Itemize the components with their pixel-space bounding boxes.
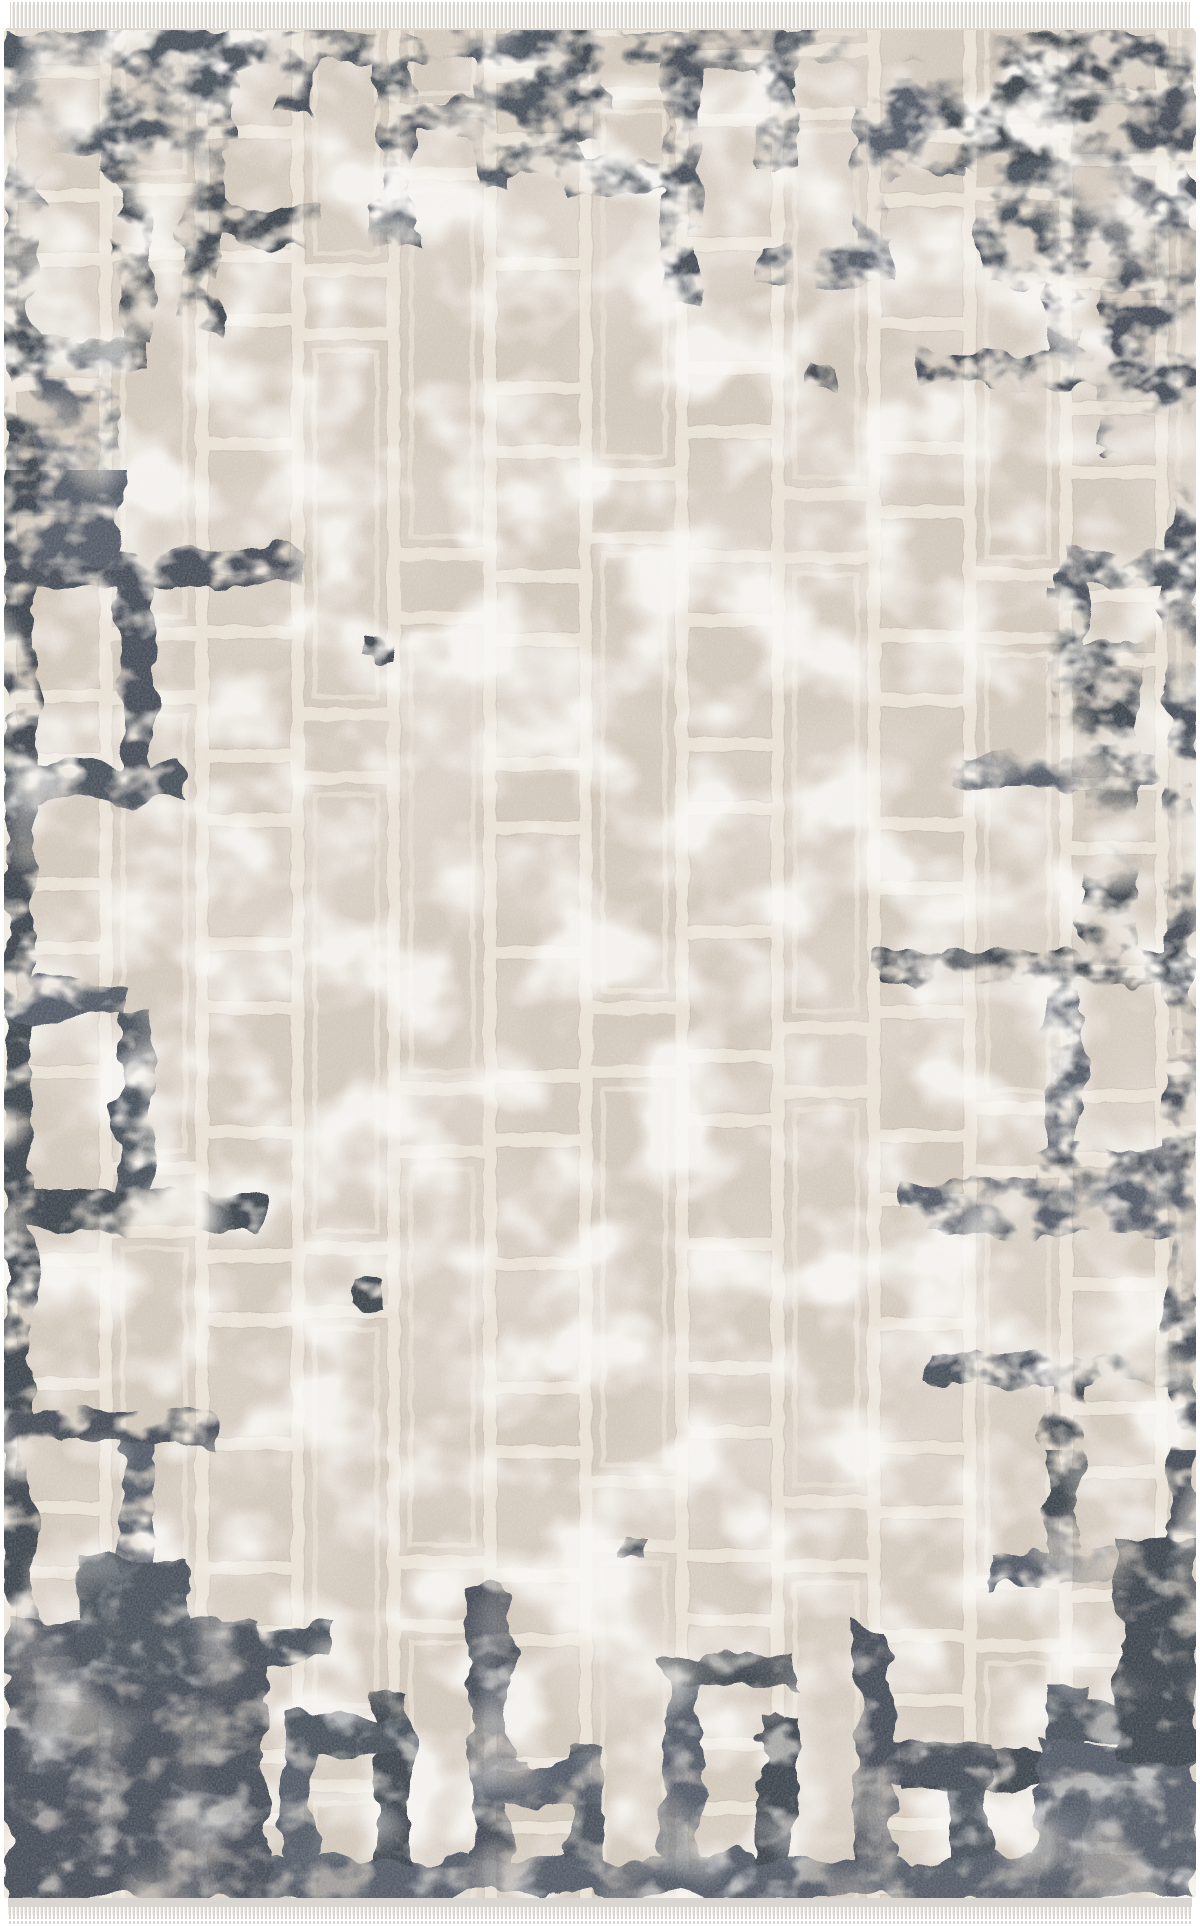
selvage-bottom (8, 1898, 1192, 1907)
fringe-top (10, 2, 1190, 30)
rug-product-photo (0, 0, 1200, 1927)
rug-body (4, 0, 1200, 1927)
rug-image (0, 0, 1200, 1927)
fringe-bottom (8, 1907, 1192, 1924)
pile-grain (4, 30, 1196, 1898)
